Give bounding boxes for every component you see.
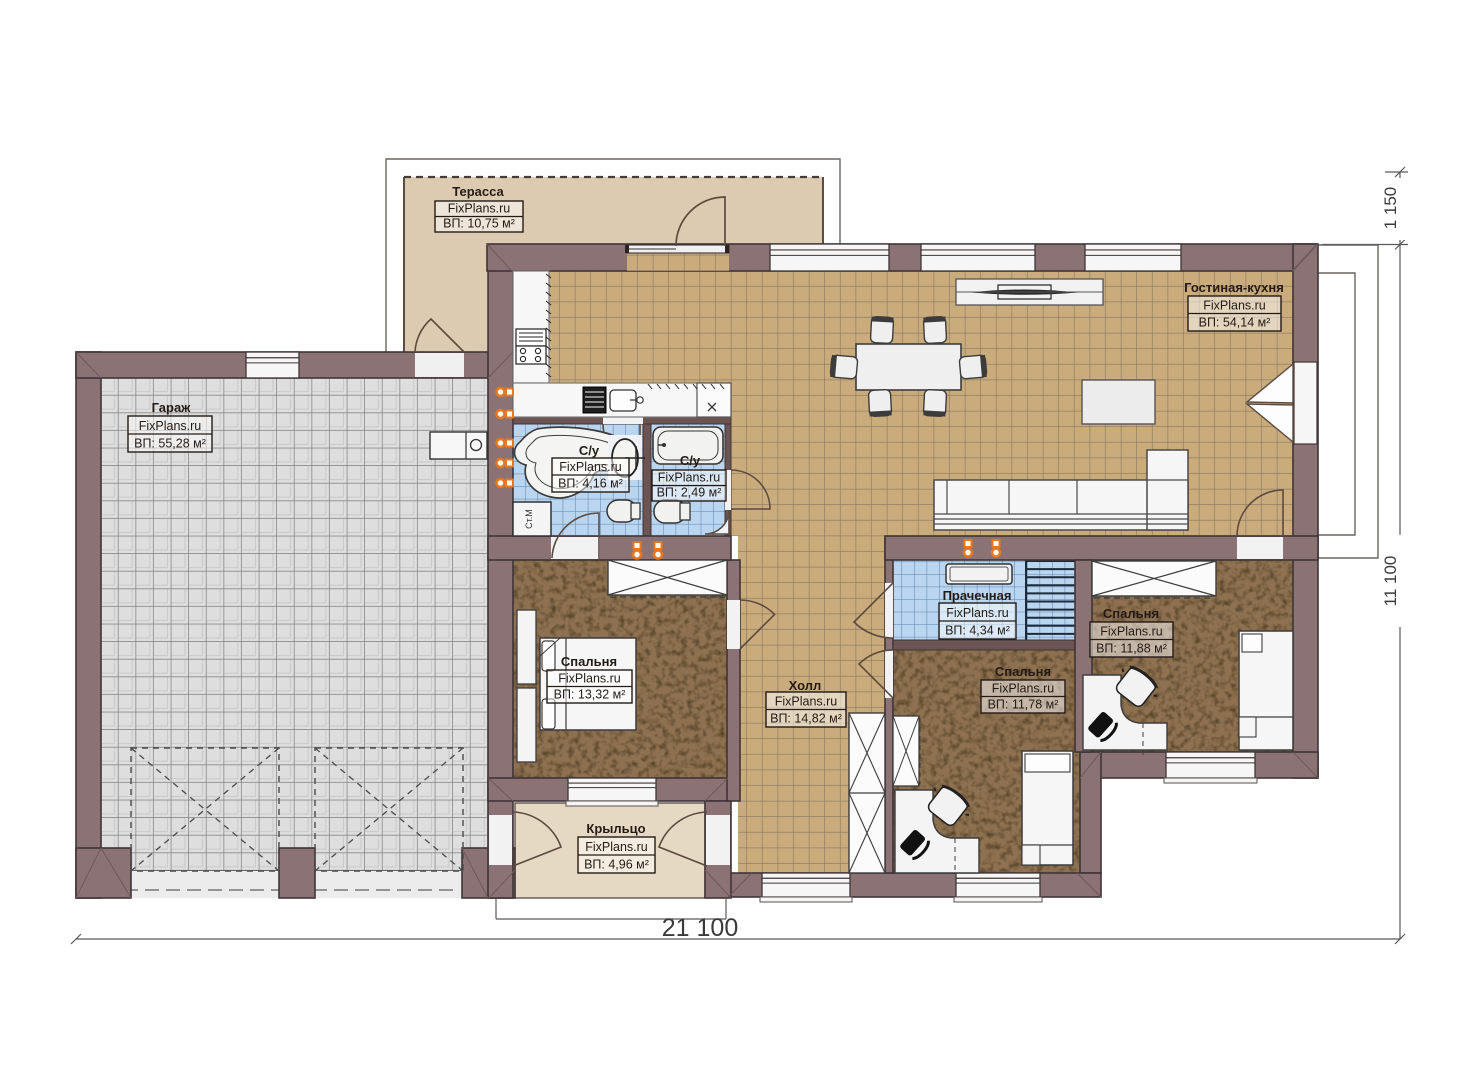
svg-text:С/у: С/у xyxy=(680,453,701,468)
svg-text:ВП: 11,78 м²: ВП: 11,78 м² xyxy=(988,698,1059,712)
svg-text:ВП: 13,32 м²: ВП: 13,32 м² xyxy=(554,688,626,702)
svg-text:11 100: 11 100 xyxy=(1381,556,1400,607)
svg-text:ВП: 54,14 м²: ВП: 54,14 м² xyxy=(1199,316,1271,330)
svg-text:Холл: Холл xyxy=(789,678,822,693)
svg-text:С/у: С/у xyxy=(579,443,600,458)
svg-text:Спальня: Спальня xyxy=(561,654,617,669)
svg-text:Ст.М: Ст.М xyxy=(524,509,534,529)
svg-text:Терасса: Терасса xyxy=(452,184,504,199)
svg-text:Спальня: Спальня xyxy=(1103,606,1159,621)
svg-text:FixPlans.ru: FixPlans.ru xyxy=(448,202,511,216)
svg-text:ВП: 4,16 м²: ВП: 4,16 м² xyxy=(558,477,623,491)
svg-text:ВП: 55,28 м²: ВП: 55,28 м² xyxy=(134,437,206,451)
svg-text:FixPlans.ru: FixPlans.ru xyxy=(992,682,1055,696)
svg-text:FixPlans.ru: FixPlans.ru xyxy=(585,840,648,854)
svg-text:FixPlans.ru: FixPlans.ru xyxy=(658,471,721,485)
svg-text:FixPlans.ru: FixPlans.ru xyxy=(559,460,622,474)
svg-text:Спальня: Спальня xyxy=(995,664,1051,679)
svg-text:ВП: 14,82 м²: ВП: 14,82 м² xyxy=(770,712,842,726)
svg-text:21 100: 21 100 xyxy=(662,914,738,942)
svg-text:Крыльцо: Крыльцо xyxy=(586,821,645,836)
svg-text:ВП: 4,96 м²: ВП: 4,96 м² xyxy=(584,858,649,872)
svg-text:FixPlans.ru: FixPlans.ru xyxy=(946,606,1009,620)
svg-text:ВП: 10,75 м²: ВП: 10,75 м² xyxy=(443,217,515,231)
svg-text:Прачечная: Прачечная xyxy=(943,588,1012,603)
svg-text:FixPlans.ru: FixPlans.ru xyxy=(775,695,838,709)
svg-text:FixPlans.ru: FixPlans.ru xyxy=(1100,625,1163,639)
svg-text:FixPlans.ru: FixPlans.ru xyxy=(1203,299,1266,313)
svg-text:1 150: 1 150 xyxy=(1381,187,1400,230)
svg-text:ВП: 2,49 м²: ВП: 2,49 м² xyxy=(657,486,722,500)
svg-text:ВП: 4,34 м²: ВП: 4,34 м² xyxy=(945,624,1010,638)
svg-text:Гостиная-кухня: Гостиная-кухня xyxy=(1184,280,1284,295)
svg-text:Гараж: Гараж xyxy=(152,400,192,415)
svg-text:ВП: 11,88 м²: ВП: 11,88 м² xyxy=(1096,642,1167,656)
svg-text:FixPlans.ru: FixPlans.ru xyxy=(139,419,202,433)
svg-text:FixPlans.ru: FixPlans.ru xyxy=(558,672,621,686)
